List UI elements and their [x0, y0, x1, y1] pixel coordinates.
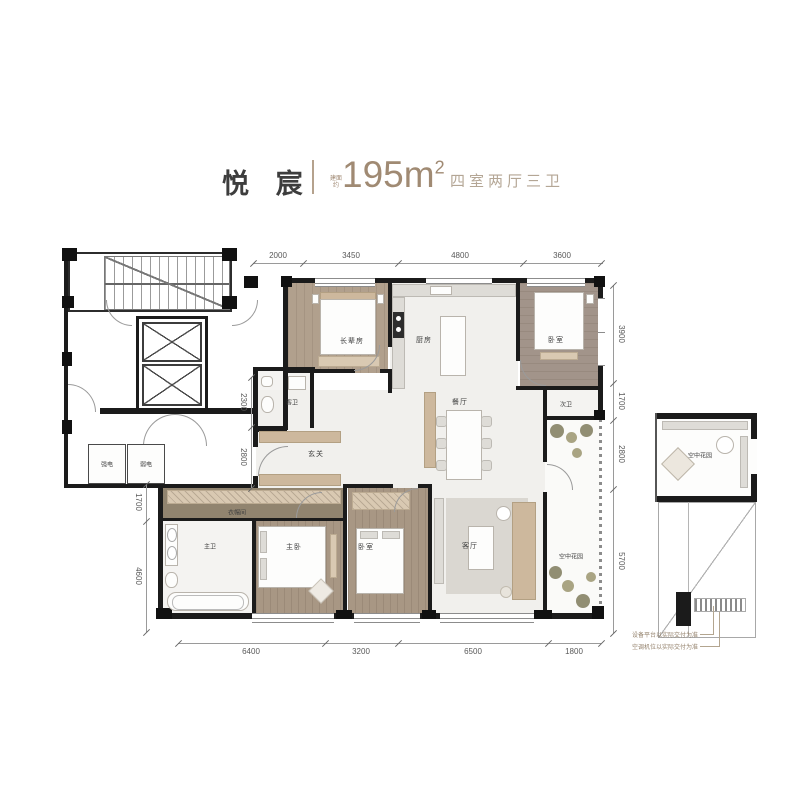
dim-inner-0: 2300 [239, 393, 248, 411]
pier [594, 276, 605, 287]
bedroom2-label: 卧室 [358, 542, 374, 552]
dim-bottom-2: 6500 [464, 647, 482, 656]
plant [580, 424, 593, 437]
entry-wall-upper [253, 367, 258, 447]
plant [550, 424, 564, 438]
dim-bottom-1: 3200 [352, 647, 370, 656]
pier [422, 610, 436, 619]
master-window [252, 613, 334, 623]
plant [572, 448, 582, 458]
bedroom-top-window [527, 278, 585, 287]
garden-box-top-wall [655, 413, 757, 419]
plant [566, 432, 577, 443]
dim-bottom-0: 6400 [242, 647, 260, 656]
core-mid-wall [100, 408, 256, 414]
dim-top-1: 3450 [342, 251, 360, 260]
note-leader-1 [700, 634, 714, 635]
sofa [512, 502, 536, 600]
dim-right-1: 1700 [617, 392, 626, 410]
guest-bath-top-wall [253, 367, 315, 371]
garden-box-label: 空中花园 [688, 451, 712, 460]
core-left-wall [64, 250, 68, 488]
elevator-1 [142, 322, 202, 362]
garden-strip-label: 空中花园 [559, 552, 583, 561]
kitchen-right-wall [516, 281, 520, 361]
foyer-cabinet-top [259, 431, 341, 443]
foyer-label: 玄关 [308, 449, 324, 459]
suite-top-wall [158, 484, 258, 488]
kitchen-counter-left [392, 297, 405, 389]
plant [562, 580, 574, 592]
plan-header: 悦 宸 建面 约 195m2 四室两厅三卫 [222, 158, 602, 202]
pier [62, 296, 74, 308]
dim-tick [598, 260, 605, 267]
master-bed [258, 526, 326, 588]
dim-left-1: 4600 [134, 567, 143, 585]
garden-strip-glass [599, 418, 602, 618]
pier [336, 610, 352, 619]
plant [576, 594, 590, 608]
bedroom2-right-wall [428, 486, 432, 617]
stove-burner [396, 327, 401, 332]
garden-box-right-wall-a [751, 413, 757, 439]
dim-left-0: 1700 [134, 493, 143, 511]
plant [549, 566, 562, 579]
core-bottom-wall [64, 484, 162, 488]
guest-bath-bottom-wall [253, 426, 287, 430]
bedroom-top-bottom-wall [516, 386, 603, 390]
master-bath-label: 主卫 [204, 542, 216, 551]
pier [244, 276, 258, 288]
elder-bottom-stub [380, 369, 392, 373]
dim-line-top [253, 263, 603, 264]
dining-chair [481, 460, 492, 471]
dining-label: 餐厅 [452, 397, 468, 407]
dim-line-bottom [178, 643, 601, 644]
pier [222, 296, 237, 309]
dim-line-inner [251, 377, 252, 488]
unit-left-wall-bottom [158, 486, 163, 618]
stove-burner [396, 316, 401, 321]
bedroom2-pillow [382, 531, 400, 539]
bedroom2-top-wall [343, 484, 393, 488]
title-divider [312, 160, 314, 194]
area-prefix: 建面 约 [330, 176, 342, 190]
elec-strong-label: 强电 [101, 460, 113, 469]
dining-chair [436, 416, 447, 427]
floor-lamp [500, 586, 512, 598]
pier [62, 352, 72, 366]
note-line-2: 空调机位以实际交付为准 [558, 642, 698, 651]
note-leader-2 [700, 646, 720, 647]
elevator-2 [142, 364, 202, 406]
pier [222, 248, 237, 261]
elder-label: 长辈房 [340, 336, 364, 346]
bath2-label: 次卫 [560, 400, 572, 409]
pier [156, 608, 172, 619]
kitchen-island [440, 316, 466, 376]
garden-table [716, 436, 734, 454]
garden-shelf [662, 421, 748, 430]
note-line-1: 设备平台以实际交付为准 [558, 630, 698, 639]
dim-top-0: 2000 [269, 251, 287, 260]
layout-spec: 四室两厅三卫 [450, 170, 564, 191]
guest-bath-right-wall [310, 367, 314, 428]
bedroom-top-side-window [598, 298, 605, 366]
guest-bath-label: 客卫 [286, 398, 298, 407]
bedroom-top-bench [540, 352, 578, 360]
elder-window [315, 278, 375, 287]
pier [534, 610, 552, 619]
closet-label: 衣帽间 [228, 508, 246, 517]
note-leader-2v [719, 612, 720, 647]
dim-top-2: 4800 [451, 251, 469, 260]
equipment-platform [658, 502, 756, 638]
nightstand [312, 294, 319, 304]
pier [62, 420, 72, 434]
dim-top-3: 3600 [553, 251, 571, 260]
masterbath-right-wall [252, 520, 256, 617]
pier [62, 248, 77, 261]
dim-inner-1: 2800 [239, 448, 248, 466]
dining-table [446, 410, 482, 480]
dim-right-0: 3900 [617, 325, 626, 343]
bedroom2-window [354, 613, 420, 623]
living-window [440, 613, 534, 623]
garden-strip-left-wall-a [543, 418, 547, 462]
plant [586, 572, 596, 582]
guest-shower [288, 376, 306, 390]
master-bench [330, 534, 337, 578]
dim-line-right [613, 285, 614, 633]
kitchen-counter-top [392, 284, 516, 297]
nightstand [377, 294, 384, 304]
side-table [496, 506, 511, 521]
pier [592, 606, 604, 619]
vanity-basin [167, 528, 177, 542]
dim-right-2: 2800 [617, 445, 626, 463]
master-label: 主卧 [286, 542, 302, 552]
nightstand [586, 294, 594, 304]
hall-screen [424, 392, 436, 468]
master-right-wall [343, 486, 347, 617]
master-toilet [165, 572, 178, 588]
tv-cabinet [434, 498, 444, 584]
dim-right-3: 5700 [617, 552, 626, 570]
pier [594, 410, 605, 420]
plan-name: 悦 宸 [222, 162, 313, 201]
dining-chair [481, 416, 492, 427]
platform-wall [676, 592, 691, 626]
bedroom-top-label: 卧室 [548, 335, 564, 345]
floor-plan-page: 悦 宸 建面 约 195m2 四室两厅三卫 强电 弱电 [0, 0, 800, 800]
bathtub-inner [172, 595, 244, 610]
elec-weak-label: 弱电 [140, 460, 152, 469]
platform-grille [694, 598, 746, 612]
guest-sink [261, 376, 273, 387]
kitchen-sink [430, 286, 452, 295]
garden-bench [740, 436, 748, 488]
dining-chair [436, 460, 447, 471]
vanity-basin [167, 546, 177, 560]
guest-toilet [261, 396, 274, 413]
bedroom2-pillow [360, 531, 378, 539]
dim-tick [143, 629, 150, 636]
pier [281, 276, 292, 287]
dim-line-left [146, 484, 147, 632]
dining-chair [436, 438, 447, 449]
unit-left-wall-top [283, 278, 288, 430]
area-value: 195m2 [342, 154, 445, 196]
kitchen-label: 厨房 [416, 335, 432, 345]
note-leader-1v [713, 606, 714, 635]
garden-box-left-wall [655, 413, 657, 502]
master-pillow [260, 558, 267, 580]
living-label: 客厅 [462, 541, 478, 551]
garden-box-right-wall-b [751, 474, 757, 502]
master-pillow [260, 531, 267, 553]
garden-strip-left-wall-b [543, 492, 547, 617]
dining-chair [481, 438, 492, 449]
